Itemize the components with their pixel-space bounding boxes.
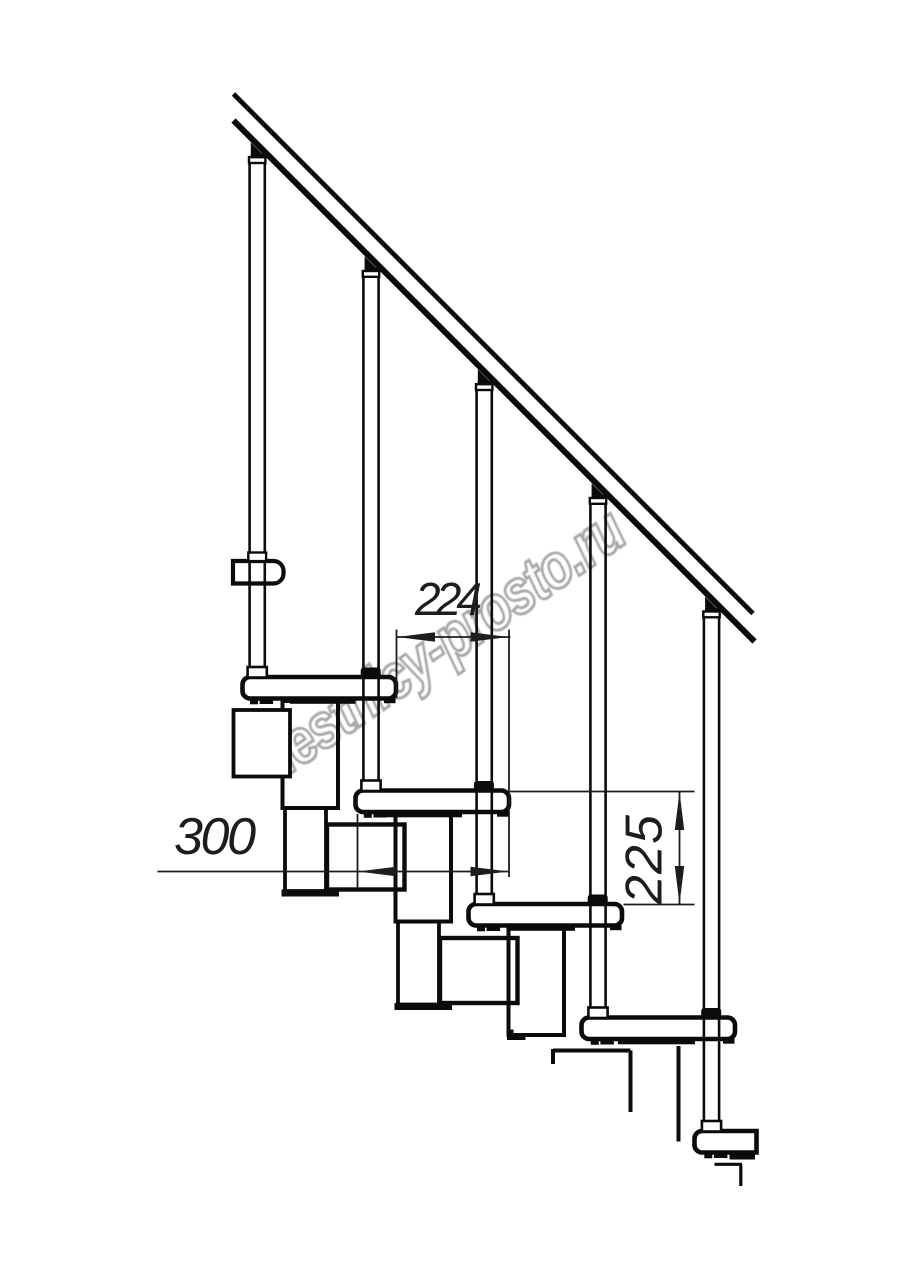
svg-text:224: 224 <box>414 573 482 625</box>
svg-text:300: 300 <box>174 808 256 866</box>
svg-text:225: 225 <box>616 814 674 905</box>
